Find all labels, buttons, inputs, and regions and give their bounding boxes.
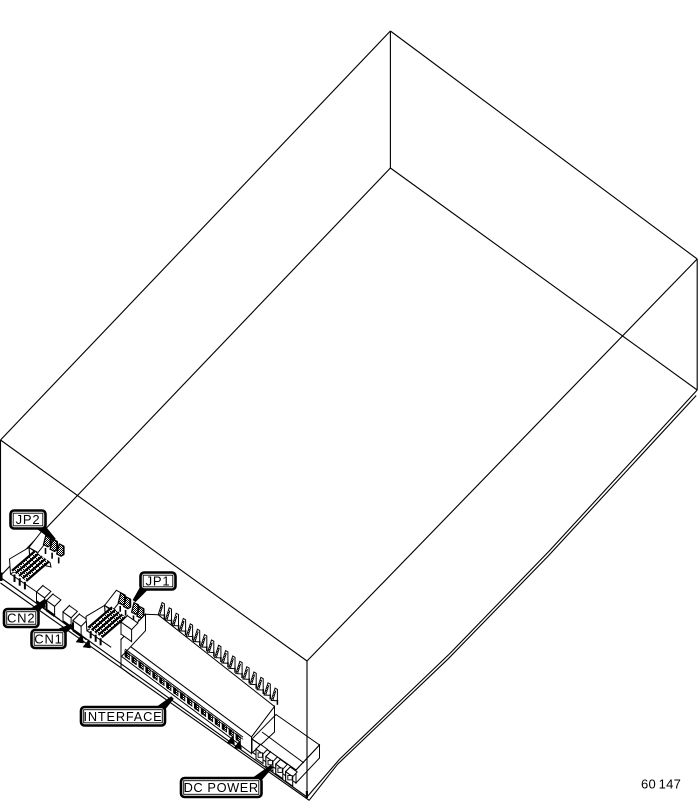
- svg-text:JP2: JP2: [16, 512, 41, 527]
- svg-text:60147: 60147: [641, 777, 681, 792]
- svg-text:CN1: CN1: [34, 632, 62, 647]
- svg-text:JP1: JP1: [146, 574, 171, 589]
- svg-text:DC POWER: DC POWER: [184, 780, 259, 795]
- svg-text:CN2: CN2: [7, 611, 35, 626]
- svg-text:INTERFACE: INTERFACE: [83, 709, 162, 724]
